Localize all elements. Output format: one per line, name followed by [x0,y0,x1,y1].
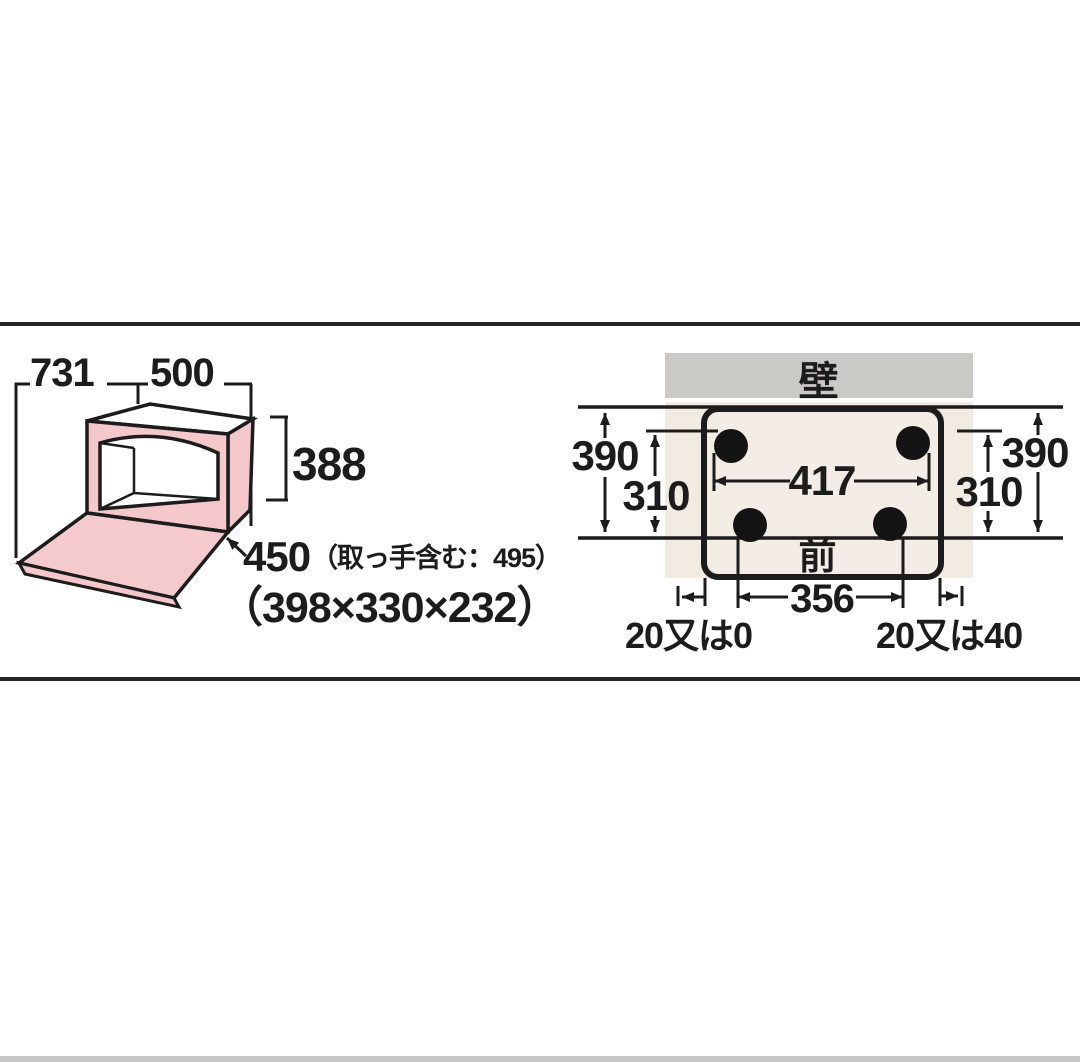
dim-right-feet-pitch-label: 310 [955,468,1022,515]
right-clearance-dimension [940,578,962,606]
oven-dimension-diagram: 731 500 388 450 （取っ手含む：495） （398×330×232… [0,0,1080,1062]
dim-cavity-label: （398×330×232） [220,584,558,632]
dim-body-width-label: 500 [150,351,214,395]
foot-front-right [873,507,907,541]
wall-label: 壁 [799,360,838,404]
dim-left-feet-pitch-label: 310 [622,472,689,519]
dim-left-clearance-label: 20又は0 [625,615,752,656]
left-clearance-dimension [678,578,705,606]
dim-rear-feet-width-label: 417 [788,457,855,504]
dim-right-clearance-label: 20又は40 [876,615,1022,656]
height-dimension-bracket [266,417,288,500]
foot-front-left [733,508,767,542]
dim-front-feet-width-label: 356 [790,577,854,621]
foot-rear-left [714,429,748,463]
front-label: 前 [798,536,835,578]
left-oven-diagram: 731 500 388 450 （取っ手含む：495） （398×330×232… [16,351,561,632]
foot-rear-right [896,426,930,460]
oven-right-face [228,419,253,532]
dimension-diagram-image: 731 500 388 450 （取っ手含む：495） （398×330×232… [0,0,1080,1062]
right-footprint-diagram: 壁 前 390 310 417 390 310 356 20又は0 20又は40 [571,353,1068,656]
dim-body-height-label: 388 [292,438,366,490]
dim-overall-width-label: 731 [30,351,94,395]
dim-depth-note-label: （取っ手含む：495） [311,542,561,573]
dim-body-depth-label: 450 [243,533,310,580]
